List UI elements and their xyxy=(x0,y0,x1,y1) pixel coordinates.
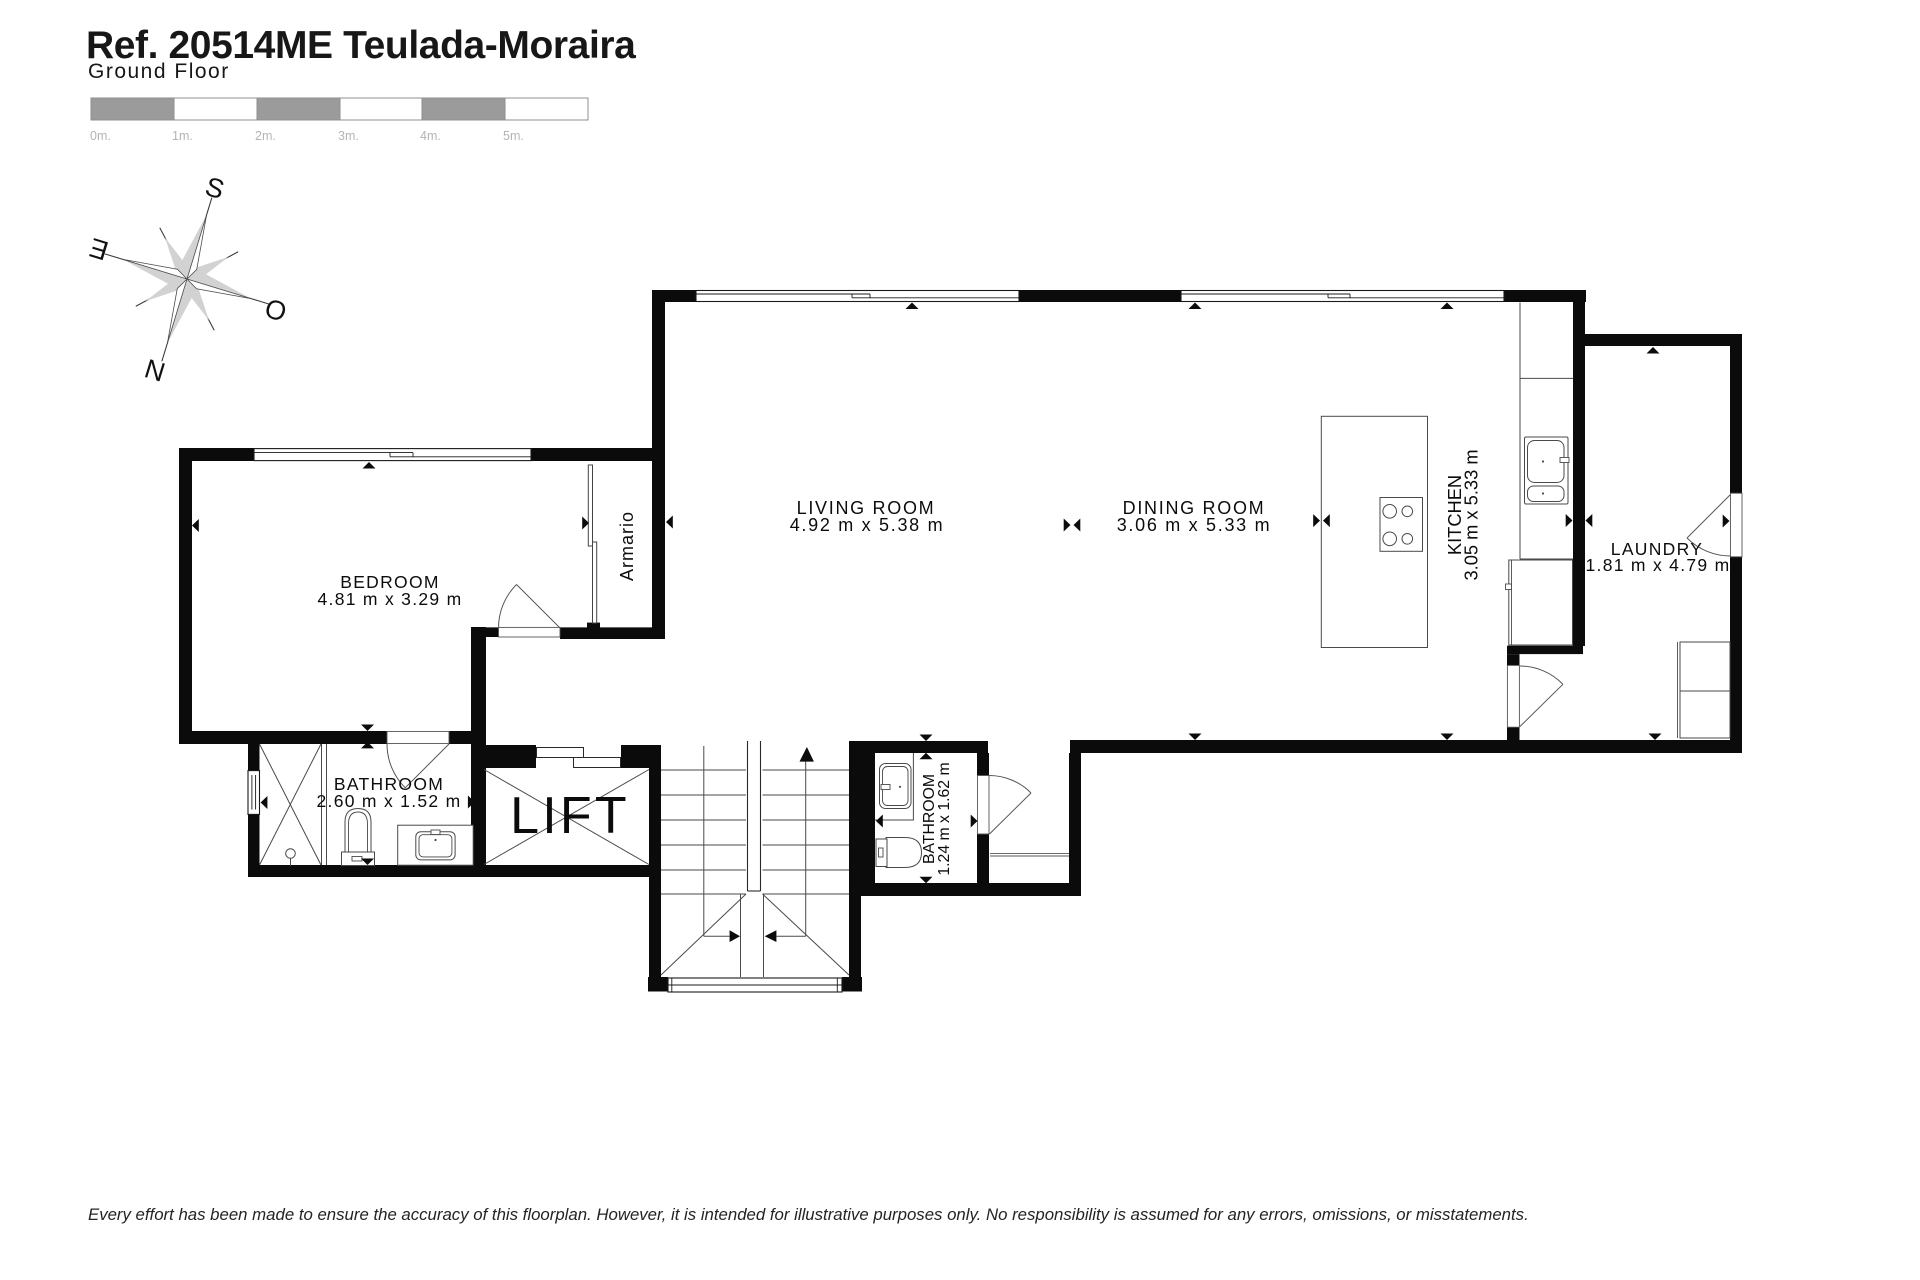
svg-text:3.05 m x 5.33 m: 3.05 m x 5.33 m xyxy=(1461,449,1482,580)
svg-text:2.60 m x 1.52 m: 2.60 m x 1.52 m xyxy=(317,791,462,811)
svg-text:2m.: 2m. xyxy=(255,129,276,143)
svg-text:1.81 m x 4.79 m: 1.81 m x 4.79 m xyxy=(1586,555,1731,575)
svg-text:0m.: 0m. xyxy=(90,129,111,143)
svg-text:1m.: 1m. xyxy=(172,129,193,143)
svg-text:LIFT: LIFT xyxy=(510,787,630,845)
svg-text:4.92 m x 5.38 m: 4.92 m x 5.38 m xyxy=(790,515,945,535)
svg-text:3m.: 3m. xyxy=(338,129,359,143)
svg-text:Armario: Armario xyxy=(617,511,637,581)
svg-text:4m.: 4m. xyxy=(420,129,441,143)
svg-text:5m.: 5m. xyxy=(503,129,524,143)
svg-text:4.81 m x 3.29 m: 4.81 m x 3.29 m xyxy=(318,589,463,609)
svg-text:1.24 m x 1.62 m: 1.24 m x 1.62 m xyxy=(936,762,953,875)
svg-text:3.06 m x 5.33 m: 3.06 m x 5.33 m xyxy=(1117,515,1272,535)
svg-text:Ground Floor: Ground Floor xyxy=(88,60,230,83)
svg-text:Every effort has been made to: Every effort has been made to ensure the… xyxy=(88,1205,1529,1224)
